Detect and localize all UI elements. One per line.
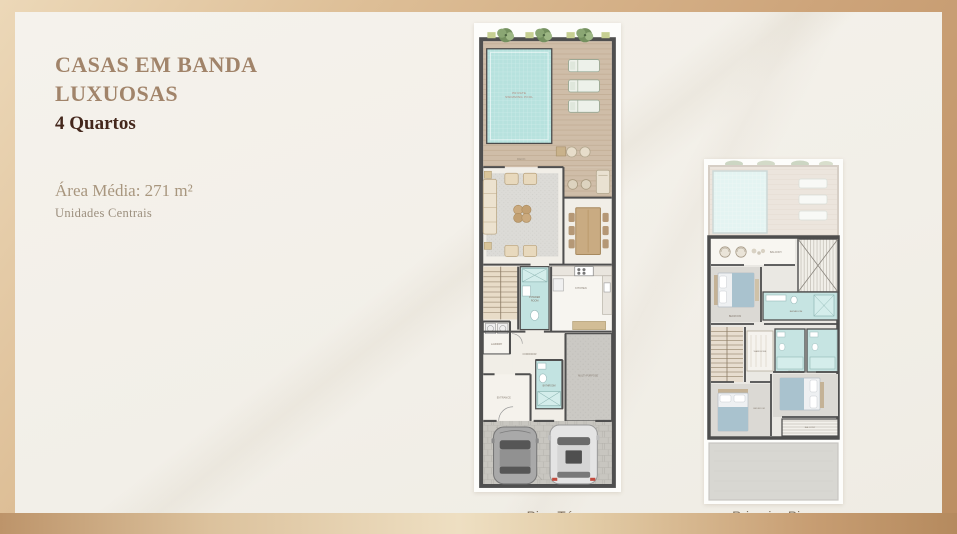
kitchen: KITCHEN xyxy=(551,267,612,332)
bathroom-label: BATHROOM xyxy=(790,310,803,313)
armchair xyxy=(505,173,518,184)
floor-plan-ground-card: PRIVATE SWIMMING POOL DECK xyxy=(474,23,621,492)
deck-label: DECK xyxy=(517,157,526,161)
pool-label-line2: SWIMMING POOL xyxy=(505,95,533,99)
armchair xyxy=(505,245,518,256)
title-line2: LUXUOSAS xyxy=(55,79,385,108)
ghost-garage-roof xyxy=(709,443,838,500)
powder-room-label-line2: ROOM xyxy=(531,300,539,303)
staircase xyxy=(711,327,743,382)
entrance: ENTRANCE xyxy=(483,374,530,421)
laundry-label: LAUNDRY xyxy=(491,343,503,346)
staircase xyxy=(483,267,518,320)
frame-bottom-band xyxy=(0,513,957,534)
slide-background: CASAS EM BANDA LUXUOSAS 4 Quartos Área M… xyxy=(0,0,957,534)
armchair xyxy=(523,173,536,184)
units-text: Unidades Centrais xyxy=(55,206,385,221)
powder-room: POWDER ROOM xyxy=(520,267,549,330)
armchair xyxy=(523,245,536,256)
car-sedan xyxy=(491,427,538,484)
bathroom-2 xyxy=(775,329,805,372)
title-line1: CASAS EM BANDA xyxy=(55,50,385,79)
balcony-label: BALCONY xyxy=(770,251,782,254)
corridor-label: CORRIDOR xyxy=(523,352,537,356)
sun-loungers xyxy=(569,60,600,113)
bedrooms-subtitle: 4 Quartos xyxy=(55,113,385,135)
wardrobe: WARDROBE xyxy=(747,331,773,371)
garage xyxy=(483,421,611,484)
living-rug xyxy=(486,173,558,256)
balcony-rear-label: BALCONY xyxy=(805,426,816,429)
slide-canvas: CASAS EM BANDA LUXUOSAS 4 Quartos Área M… xyxy=(15,12,942,513)
floor-plan-first-card: BALCONY BEDROOM xyxy=(704,159,843,504)
bedroom-label: BEDROOM xyxy=(753,408,764,410)
bathroom-1: BATHROOM xyxy=(763,292,838,320)
bedroom-3: BEDROOM xyxy=(773,371,838,417)
balcony-rear: BALCONY xyxy=(782,419,838,436)
kitchen-label: KITCHEN xyxy=(575,286,587,290)
swimming-pool: PRIVATE SWIMMING POOL xyxy=(487,49,551,142)
balcony: BALCONY xyxy=(711,239,795,265)
bathroom-label: BATHROOM xyxy=(543,384,556,387)
entrance-label: ENTRANCE xyxy=(497,396,511,400)
floor-plan-first-drawing: BALCONY BEDROOM xyxy=(704,159,843,504)
multi-purpose-label: MULTI-PURPOSE xyxy=(578,374,598,377)
dining-room xyxy=(569,208,609,255)
bedroom-1: BEDROOM xyxy=(711,267,761,322)
living-room xyxy=(483,171,558,256)
average-area-text: Área Média: 271 m² xyxy=(55,181,385,201)
bedroom-label: BEDROOM xyxy=(729,315,741,318)
bedroom-2: BEDROOM xyxy=(711,384,771,436)
wardrobe-label: WARDROBE xyxy=(754,350,767,353)
floor-plan-ground-drawing: PRIVATE SWIMMING POOL DECK xyxy=(474,23,621,492)
page-title: CASAS EM BANDA LUXUOSAS xyxy=(55,50,385,108)
multi-purpose-room: MULTI-PURPOSE xyxy=(565,334,611,421)
powder-room-label-line1: POWDER xyxy=(529,296,540,299)
ghost-pool-level xyxy=(709,161,838,238)
sofa xyxy=(483,179,496,234)
laundry: LAUNDRY xyxy=(483,321,510,353)
info-panel: CASAS EM BANDA LUXUOSAS 4 Quartos Área M… xyxy=(55,50,385,221)
stair-void xyxy=(798,239,838,292)
bathroom: BATHROOM xyxy=(536,360,563,409)
bathroom-3 xyxy=(807,329,838,372)
car-suv xyxy=(548,425,599,484)
